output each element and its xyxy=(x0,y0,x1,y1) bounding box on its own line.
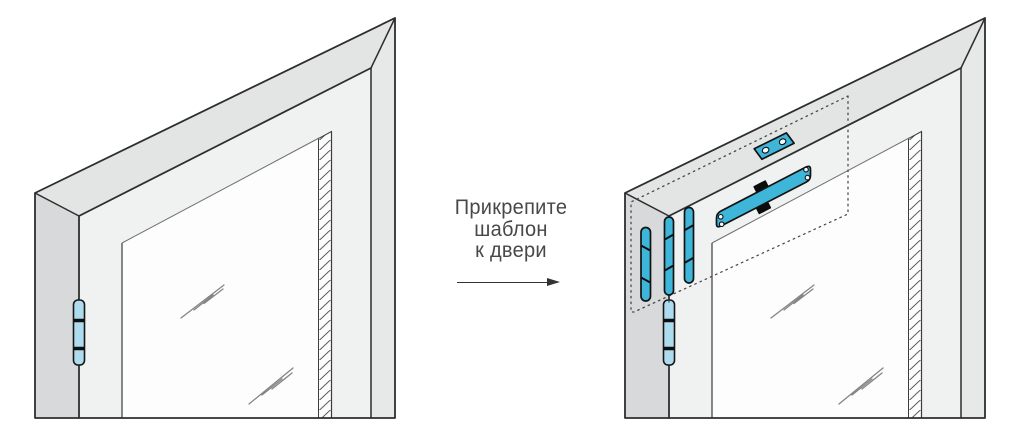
door-before xyxy=(35,18,395,418)
template-hinge-marker-corner xyxy=(665,217,674,303)
arrow-right-icon xyxy=(457,282,547,283)
template-hinge-marker-front xyxy=(685,208,694,284)
caption: Прикрепите шаблон к двери xyxy=(431,197,591,262)
door-after xyxy=(625,18,985,418)
caption-line-2: шаблон xyxy=(431,219,591,241)
door-after-base xyxy=(625,18,985,418)
caption-line-3: к двери xyxy=(431,240,591,262)
caption-line-1: Прикрепите xyxy=(431,197,591,219)
template-hinge-marker-side xyxy=(641,228,651,302)
